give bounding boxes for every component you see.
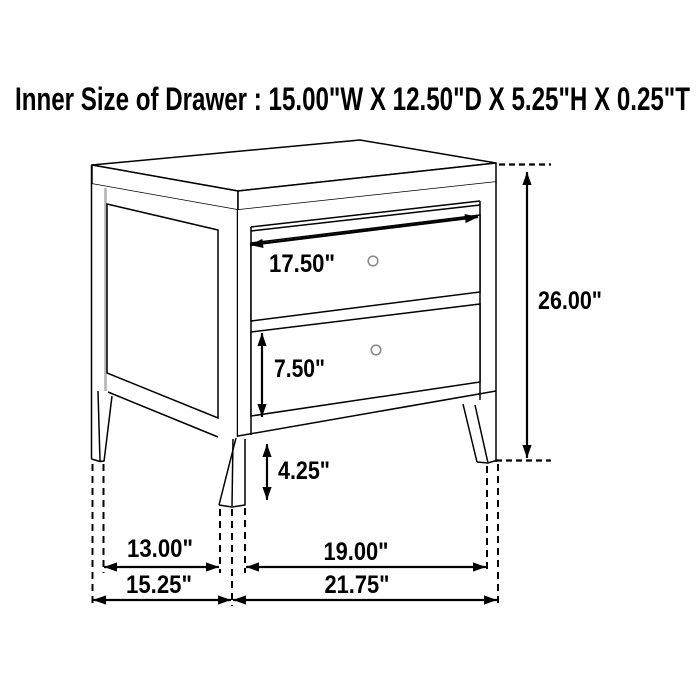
label-depth-inner: 13.00" (127, 535, 193, 563)
arrowhead-icon (218, 595, 231, 604)
front-right-leg (463, 404, 496, 463)
dimension-depth-inner: 13.00" (104, 535, 219, 572)
arrowhead-icon (262, 487, 271, 500)
arrowhead-icon (233, 595, 246, 604)
dimension-depth-overall: 15.25" (93, 571, 231, 605)
label-drawer-width: 17.50" (269, 250, 335, 278)
dimension-width-overall: 21.75" (233, 571, 497, 605)
front-face (238, 182, 496, 462)
arrowhead-icon (473, 562, 486, 571)
arrowhead-icon (206, 562, 219, 571)
label-width-inner: 19.00" (324, 538, 389, 566)
arrowhead-icon (522, 445, 531, 458)
arrowhead-icon (104, 562, 117, 571)
arrowhead-icon (93, 595, 106, 604)
dimension-overall-height: 26.00" (496, 165, 602, 461)
arrowhead-icon (522, 172, 531, 185)
label-leg-height: 4.25" (278, 457, 330, 485)
left-side-panel (92, 165, 239, 459)
drawer-2-knob-icon (371, 345, 381, 355)
dimension-width-inner: 19.00" (246, 538, 486, 572)
page-title: Inner Size of Drawer : 15.00"W X 12.50"D… (15, 81, 690, 117)
label-bottom-drawer-height: 7.50" (274, 355, 325, 383)
front-left-leg (219, 438, 245, 507)
dimension-leg-height: 4.25" (262, 444, 330, 500)
arrowhead-icon (246, 562, 259, 571)
label-width-overall: 21.75" (325, 571, 390, 599)
arrowhead-icon (262, 444, 271, 457)
drawer-1-knob-icon (368, 256, 378, 266)
label-overall-height: 26.00" (538, 287, 602, 315)
nightstand-dimension-diagram: Inner Size of Drawer : 15.00"W X 12.50"D… (0, 0, 700, 700)
dimension-diagram-page: Inner Size of Drawer : 15.00"W X 12.50"D… (0, 0, 700, 700)
label-depth-overall: 15.25" (126, 571, 192, 599)
arrowhead-icon (484, 595, 497, 604)
